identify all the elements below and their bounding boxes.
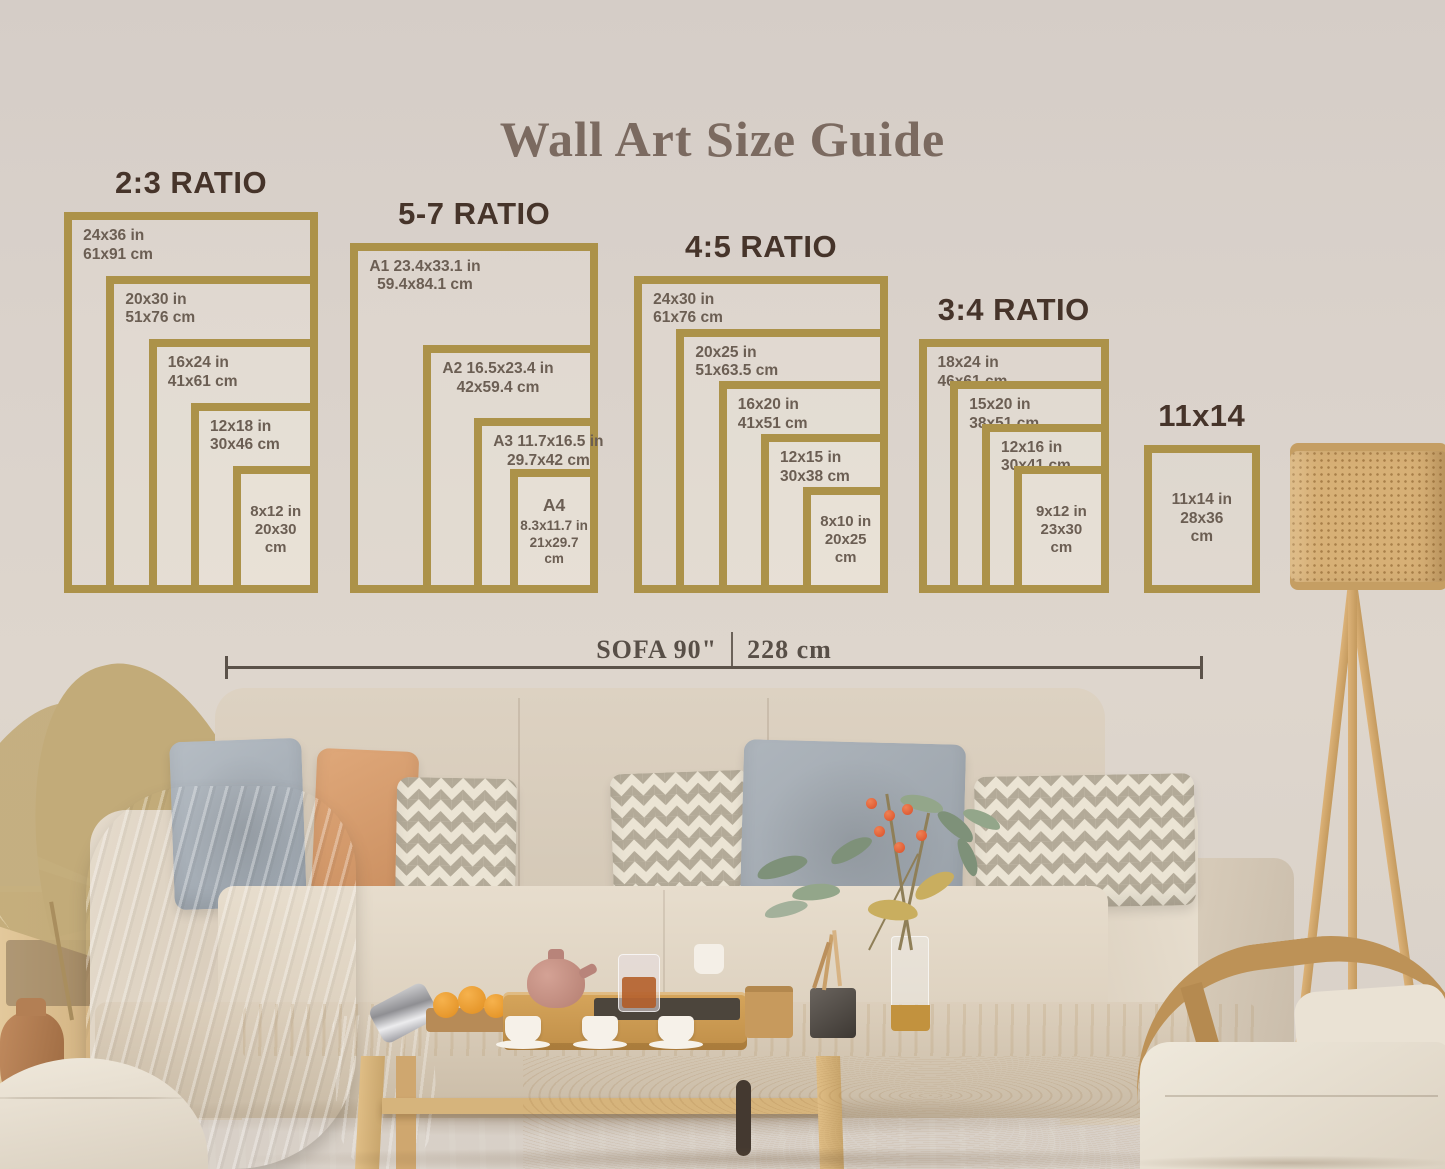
red-berry [902,804,913,815]
tea-cup-with-saucer [658,1016,694,1042]
frame-size-label: A1 23.4x33.1 in59.4x84.1 cm [369,258,480,295]
red-berry [916,830,927,841]
tea-cup-with-saucer [582,1016,618,1042]
frame-size-label: 8x12 in20x30cm [241,474,310,585]
glass-tea-infuser [618,954,660,1012]
sofa-measure-text: SOFA 90" 228 cm [225,632,1203,668]
frame-size-label: 12x15 in30x38 cm [780,449,850,486]
ratio-title-3-4: 3:4 RATIO [919,292,1109,332]
ratio-title-11x14: 11x14 [1144,398,1260,438]
red-berry [884,810,895,821]
sofa-length-inches: SOFA 90" [596,635,717,665]
sofa-length-cm: 228 cm [747,635,832,665]
frame-5-7-8.3x11.7-in: A48.3x11.7 in21x29.7cm [510,469,598,593]
frame-11x14-11x14-in: 11x14 in28x36cm [1144,445,1260,593]
frame-size-label: 24x36 in61x91 cm [83,227,153,264]
tea-cup [694,944,724,974]
cabinet-handle [736,1080,751,1156]
table-cabinet [523,1056,1150,1169]
red-berry [894,842,905,853]
orange-fruit [433,992,459,1018]
frame-size-label: 20x30 in51x76 cm [125,291,195,328]
frame-4-5-8x10-in: 8x10 in20x25cm [803,487,888,593]
frame-size-label: 16x24 in41x61 cm [168,354,238,391]
frame-size-label: A3 11.7x16.5 in29.7x42 cm [493,433,603,470]
ratio-title-4-5: 4:5 RATIO [634,229,888,269]
armchair-seat-cushion [1140,1042,1445,1169]
frame-size-label: A48.3x11.7 in21x29.7cm [518,477,590,585]
frame-3-4-9x12-in: 9x12 in23x30cm [1014,466,1109,593]
frame-size-label: 16x20 in41x51 cm [738,396,808,433]
frame-size-label: 24x30 in61x76 cm [653,291,723,328]
ratio-title-2-3: 2:3 RATIO [64,165,318,205]
frame-size-label: 12x18 in30x46 cm [210,418,280,455]
frame-size-label: 11x14 in28x36cm [1152,453,1252,585]
measure-line [225,666,1203,669]
frame-2-3-8x12-in: 8x12 in20x30cm [233,466,318,593]
sofa-measure: SOFA 90" 228 cm [225,632,1203,676]
frame-size-label: 8x10 in20x25cm [811,495,880,585]
orange-fruit [458,986,486,1014]
utensil-holder [810,988,856,1038]
wooden-caddy [745,986,793,1038]
wall-art-size-guide-poster: Wall Art Size Guide 2:3 RATIO24x36 in61x… [0,0,1445,1169]
red-berry [874,826,885,837]
measure-separator [731,632,733,668]
tea-cup-with-saucer [505,1016,541,1042]
teapot [527,958,585,1008]
rattan-lamp-shade [1290,443,1445,590]
red-berry [866,798,877,809]
frame-size-label: A2 16.5x23.4 in42x59.4 cm [442,360,553,397]
frame-size-label: 20x25 in51x63.5 cm [695,344,778,381]
ratio-title-5-7: 5-7 RATIO [350,196,598,236]
frame-size-label: 9x12 in23x30cm [1022,474,1101,585]
